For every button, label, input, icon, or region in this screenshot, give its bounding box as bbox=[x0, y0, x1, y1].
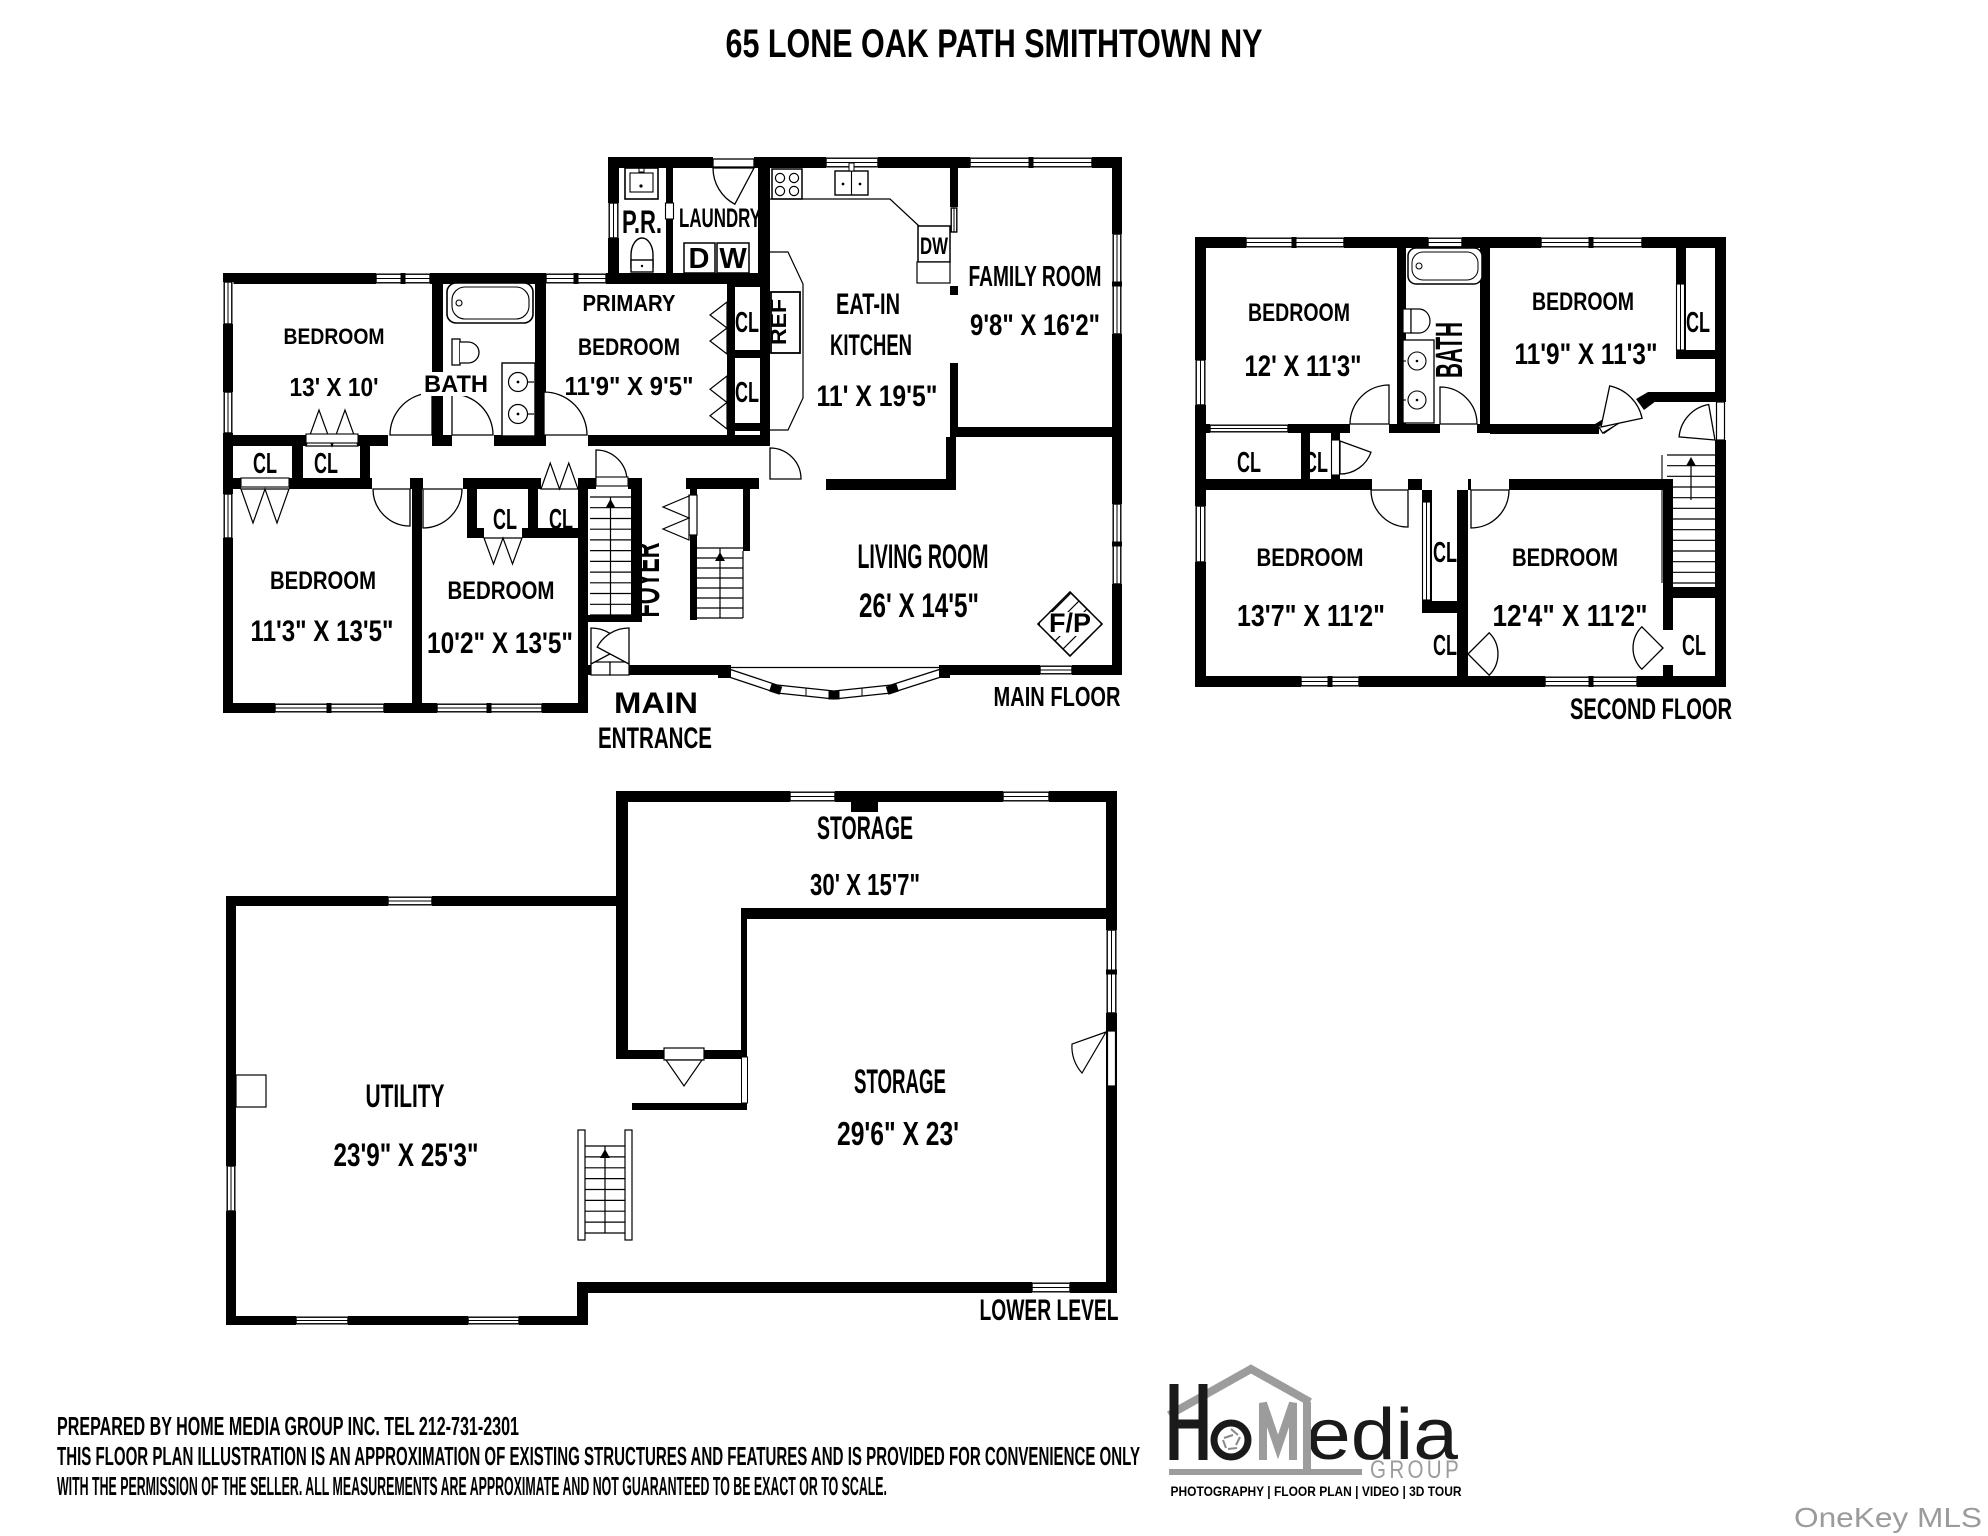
svg-text:BEDROOM: BEDROOM bbox=[1532, 288, 1634, 316]
svg-text:CL: CL bbox=[735, 377, 759, 409]
svg-text:REF: REF bbox=[766, 299, 791, 345]
svg-text:BEDROOM: BEDROOM bbox=[578, 334, 680, 361]
svg-text:BEDROOM: BEDROOM bbox=[1512, 544, 1618, 572]
svg-text:D: D bbox=[689, 243, 710, 275]
svg-text:26' X 14'5": 26' X 14'5" bbox=[859, 587, 979, 625]
svg-text:STORAGE: STORAGE bbox=[817, 810, 913, 846]
svg-text:29'6" X 23': 29'6" X 23' bbox=[837, 1115, 959, 1152]
svg-text:LIVING ROOM: LIVING ROOM bbox=[858, 538, 989, 576]
svg-text:PHOTOGRAPHY | FLOOR PLAN | VID: PHOTOGRAPHY | FLOOR PLAN | VIDEO | 3D TO… bbox=[1171, 1484, 1462, 1499]
svg-text:CL: CL bbox=[1433, 630, 1457, 662]
svg-text:BEDROOM: BEDROOM bbox=[448, 577, 555, 605]
svg-text:CL: CL bbox=[1682, 630, 1706, 662]
svg-text:CL: CL bbox=[253, 448, 277, 480]
svg-text:PRIMARY: PRIMARY bbox=[583, 290, 676, 316]
svg-text:12' X 11'3": 12' X 11'3" bbox=[1245, 350, 1362, 383]
svg-text:10'2" X 13'5": 10'2" X 13'5" bbox=[427, 627, 573, 660]
svg-text:CL: CL bbox=[735, 307, 759, 339]
svg-text:F/P: F/P bbox=[1049, 608, 1091, 638]
svg-text:EAT-IN: EAT-IN bbox=[836, 288, 900, 321]
svg-text:P.R.: P.R. bbox=[622, 204, 662, 240]
svg-text:CL: CL bbox=[493, 504, 517, 536]
svg-text:13' X 10': 13' X 10' bbox=[290, 372, 379, 402]
svg-text:BEDROOM: BEDROOM bbox=[284, 324, 385, 349]
svg-text:GROUP: GROUP bbox=[1370, 1456, 1462, 1484]
svg-text:BATH: BATH bbox=[1429, 322, 1471, 378]
svg-text:THIS FLOOR PLAN ILLUSTRATION I: THIS FLOOR PLAN ILLUSTRATION IS AN APPRO… bbox=[57, 1441, 1140, 1471]
svg-text:FAMILY ROOM: FAMILY ROOM bbox=[969, 261, 1102, 293]
svg-text:UTILITY: UTILITY bbox=[366, 1078, 445, 1114]
svg-text:CL: CL bbox=[549, 504, 573, 536]
svg-text:LOWER LEVEL: LOWER LEVEL bbox=[980, 1294, 1119, 1327]
svg-text:13'7" X 11'2": 13'7" X 11'2" bbox=[1237, 598, 1385, 633]
svg-text:30' X 15'7": 30' X 15'7" bbox=[810, 867, 920, 902]
svg-text:9'8" X 16'2": 9'8" X 16'2" bbox=[970, 309, 1100, 342]
svg-text:12'4" X 11'2": 12'4" X 11'2" bbox=[1493, 598, 1648, 633]
svg-text:CL: CL bbox=[1433, 537, 1457, 569]
svg-text:KITCHEN: KITCHEN bbox=[830, 329, 912, 362]
svg-text:PREPARED BY HOME MEDIA GROUP: PREPARED BY HOME MEDIA GROUP INC. TEL 21… bbox=[57, 1411, 519, 1441]
svg-text:OneKey MLS: OneKey MLS bbox=[1794, 1502, 1982, 1533]
svg-text:DW: DW bbox=[920, 233, 948, 260]
svg-text:23'9" X 25'3": 23'9" X 25'3" bbox=[334, 1137, 479, 1173]
svg-text:SECOND FLOOR: SECOND FLOOR bbox=[1570, 693, 1732, 726]
svg-text:MAIN: MAIN bbox=[614, 687, 698, 720]
svg-text:LAUNDRY: LAUNDRY bbox=[679, 203, 761, 233]
svg-text:65 LONE OAK PATH SMITHTOWN NY: 65 LONE OAK PATH SMITHTOWN NY bbox=[726, 22, 1263, 66]
svg-text:CL: CL bbox=[1686, 307, 1710, 339]
svg-text:CL: CL bbox=[314, 448, 338, 480]
svg-text:CL: CL bbox=[1237, 447, 1261, 479]
svg-text:BEDROOM: BEDROOM bbox=[1257, 544, 1364, 572]
svg-text:11'9" X 9'5": 11'9" X 9'5" bbox=[565, 371, 694, 401]
svg-text:WITH THE PERMISSION OF THE SEL: WITH THE PERMISSION OF THE SELLER. ALL M… bbox=[57, 1471, 887, 1501]
svg-text:MAIN FLOOR: MAIN FLOOR bbox=[994, 681, 1121, 712]
svg-text:BEDROOM: BEDROOM bbox=[1248, 299, 1350, 327]
svg-text:CL: CL bbox=[1304, 447, 1328, 479]
svg-text:BEDROOM: BEDROOM bbox=[270, 567, 376, 595]
svg-text:BATH: BATH bbox=[424, 371, 488, 398]
svg-text:ENTRANCE: ENTRANCE bbox=[598, 722, 712, 755]
svg-text:W: W bbox=[719, 243, 747, 275]
svg-text:11' X 19'5": 11' X 19'5" bbox=[817, 380, 938, 413]
svg-text:FOYER: FOYER bbox=[624, 542, 668, 617]
svg-text:11'9" X 11'3": 11'9" X 11'3" bbox=[1515, 338, 1658, 371]
svg-text:STORAGE: STORAGE bbox=[854, 1063, 946, 1101]
svg-text:11'3" X 13'5": 11'3" X 13'5" bbox=[251, 615, 394, 648]
